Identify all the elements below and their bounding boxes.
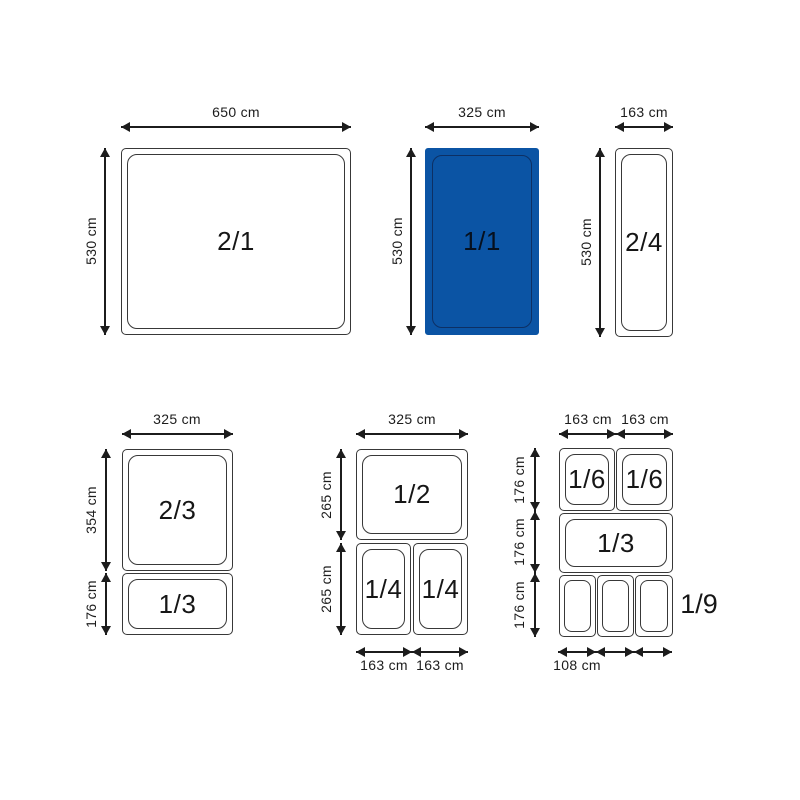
gn23-width-label: 325 cm <box>137 411 217 428</box>
gn69-row2-height-arrow <box>534 511 536 573</box>
pan-2-3: 2/3 <box>122 449 233 571</box>
pan-1-9-a <box>559 575 596 637</box>
gn21-height-arrow <box>104 148 106 335</box>
pan-1-6-b-label: 1/6 <box>617 449 672 510</box>
pan-2-4: 2/4 <box>615 148 673 337</box>
gn11-width-arrow <box>425 126 539 128</box>
pan-1-3-b-label: 1/3 <box>560 514 672 572</box>
gn11-height-label: 530 cm <box>388 181 406 301</box>
pan-1-2-label: 1/2 <box>357 450 467 539</box>
gn69-col1-width-arrow <box>559 433 616 435</box>
gn12-row2-height-arrow <box>340 543 342 635</box>
pan-1-3-b: 1/3 <box>559 513 673 573</box>
gn24-width-arrow <box>615 126 673 128</box>
pan-1-4-a: 1/4 <box>356 543 411 635</box>
pan-1-6-a-label: 1/6 <box>560 449 614 510</box>
pan-2-4-label: 2/4 <box>616 149 672 336</box>
gn23-pan2-height-label: 176 cm <box>82 544 100 664</box>
gn23-pan1-height-arrow <box>105 449 107 571</box>
pan-2-3-label: 2/3 <box>123 450 232 570</box>
gn12-pan2-width-arrow <box>356 651 412 653</box>
pan-1-6-a: 1/6 <box>559 448 615 511</box>
gn12-width-arrow <box>356 433 468 435</box>
pan-1-6-b: 1/6 <box>616 448 673 511</box>
pan-2-1: 2/1 <box>121 148 351 335</box>
gn69-row1-height-arrow <box>534 448 536 511</box>
pan-1-4-b: 1/4 <box>413 543 468 635</box>
gastronorm-size-diagram: 650 cm 530 cm 2/1 325 cm 530 cm 1/1 163 … <box>0 0 800 800</box>
gn69-row3-height-arrow <box>534 573 536 637</box>
gn11-width-label: 325 cm <box>442 104 522 121</box>
pan-1-9-a-inner-rim <box>564 580 591 632</box>
pan-1-9-c-inner-rim <box>640 580 668 632</box>
pan-1-3-a-label: 1/3 <box>123 574 232 634</box>
gn11-height-arrow <box>410 148 412 335</box>
pan-1-1-label: 1/1 <box>426 149 538 334</box>
gn69-row3-height-label: 176 cm <box>510 545 528 665</box>
gn24-width-label: 163 cm <box>604 104 684 121</box>
gn21-width-arrow <box>121 126 351 128</box>
gn23-width-arrow <box>122 433 233 435</box>
pan-2-1-label: 2/1 <box>122 149 350 334</box>
gn24-height-arrow <box>599 148 601 337</box>
pan-1-9-group-label: 1/9 <box>677 589 721 620</box>
gn69-col2-width-arrow <box>616 433 673 435</box>
pan-1-3-a: 1/3 <box>122 573 233 635</box>
gn12-pan3-width-arrow <box>412 651 468 653</box>
gn21-width-label: 650 cm <box>196 104 276 121</box>
pan-1-9-c <box>635 575 673 637</box>
gn69-row3-cell1-width-arrow <box>558 651 596 653</box>
pan-1-1-highlighted: 1/1 <box>425 148 539 335</box>
pan-1-9-b <box>597 575 634 637</box>
gn12-width-label: 325 cm <box>372 411 452 428</box>
gn21-height-label: 530 cm <box>82 181 100 301</box>
pan-1-2: 1/2 <box>356 449 468 540</box>
gn69-row3-cell-width-label: 108 cm <box>537 657 617 674</box>
pan-1-4-a-label: 1/4 <box>357 544 410 634</box>
pan-1-4-b-label: 1/4 <box>414 544 467 634</box>
gn12-row1-height-arrow <box>340 449 342 540</box>
gn69-col2-width-label: 163 cm <box>605 411 685 428</box>
pan-1-9-b-inner-rim <box>602 580 629 632</box>
gn69-row3-cell3-width-arrow <box>634 651 672 653</box>
gn12-row2-height-label: 265 cm <box>317 529 335 649</box>
gn69-row3-cell2-width-arrow <box>596 651 634 653</box>
gn24-height-label: 530 cm <box>577 182 595 302</box>
gn23-pan2-height-arrow <box>105 573 107 635</box>
gn12-pan3-width-label: 163 cm <box>400 657 480 674</box>
